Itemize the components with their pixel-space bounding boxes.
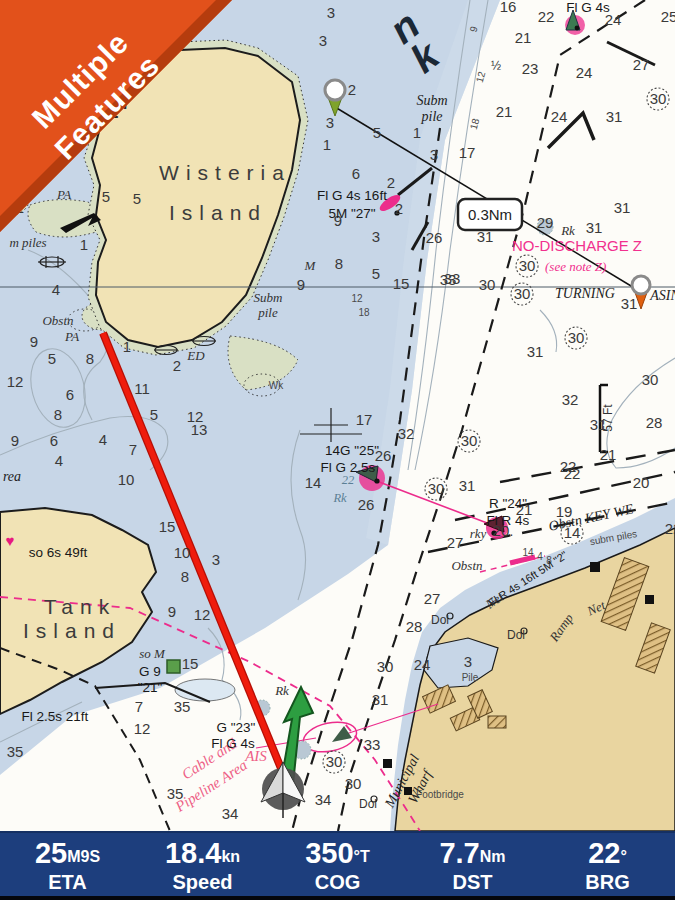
depth-sounding: 15 — [182, 655, 199, 672]
depth-sounding: 8 — [86, 350, 94, 367]
depth-sounding: 18 — [358, 307, 370, 318]
depth-sounding: 7 — [129, 441, 137, 458]
depth-sounding: 5 — [373, 124, 381, 141]
depth-sounding: 11 — [134, 380, 150, 397]
depth-sounding: 30 — [377, 658, 394, 675]
chart-label: 3 — [464, 653, 472, 670]
depth-sounding: 35 — [174, 698, 191, 715]
depth-sounding: 12 — [187, 408, 204, 425]
chart-label: rea — [3, 469, 21, 484]
chart-label: Tank — [44, 595, 116, 618]
depth-sounding: 32 — [562, 391, 579, 408]
depth-sounding: 3 — [430, 146, 438, 163]
chart-label: Subm — [254, 290, 283, 305]
depth-sounding: 2 — [173, 357, 181, 374]
chart-label: Obstn — [42, 313, 73, 328]
chart-label: 20. — [493, 522, 514, 539]
daymark-green-square — [167, 660, 180, 673]
depth-sounding: 30 — [568, 329, 585, 346]
depth-sounding: 12 — [7, 373, 24, 390]
depth-sounding: 29 — [537, 214, 554, 231]
chart-label: Island — [23, 619, 121, 642]
depth-sounding: 25 — [661, 8, 675, 25]
chart-label: 57 Ft — [601, 404, 615, 432]
depth-sounding: 9 — [30, 333, 38, 350]
depth-sounding: 3 — [319, 32, 327, 49]
chart-label: 5M "27" — [328, 206, 375, 221]
chart-label: 22 — [342, 473, 355, 487]
depth-sounding: 1 — [123, 338, 131, 355]
depth-sounding: 30 — [428, 480, 445, 497]
depth-sounding: 30 — [642, 371, 659, 388]
depth-sounding: 31 — [459, 477, 476, 494]
depth-sounding: 8 — [54, 406, 62, 423]
chart-label: rky — [470, 526, 487, 541]
depth-sounding: 32 — [398, 425, 415, 442]
depth-sounding: 5 — [150, 406, 158, 423]
depth-sounding: 27 — [447, 534, 464, 551]
depth-sounding: 24 — [576, 64, 593, 81]
chart-label: G "23" — [217, 720, 256, 735]
depth-sounding: 1 — [80, 236, 88, 253]
nav-value: 350°T — [270, 838, 405, 868]
chart-label: 14G "25" — [325, 443, 379, 458]
nav-value: 18.4kn — [135, 838, 270, 868]
depth-sounding: 23 — [522, 60, 539, 77]
depth-sounding: 33 — [444, 270, 461, 287]
nav-value: 25M9S — [0, 838, 135, 868]
bottom-strip — [0, 896, 675, 900]
depth-sounding: 12 — [134, 720, 151, 737]
chart-label: PA — [64, 329, 79, 344]
depth-sounding: 24 — [551, 108, 568, 125]
nav-value: 7.7Nm — [405, 838, 540, 868]
nautical-chart-map[interactable]: 0.3Nm 7332813162224252123242721243130513… — [0, 0, 675, 831]
depth-sounding: 22 — [538, 8, 555, 25]
nav-label: Speed — [135, 872, 270, 893]
nav-label: COG — [270, 872, 405, 893]
chart-label: Dol — [431, 613, 449, 627]
depth-sounding: 17 — [459, 144, 476, 161]
depth-sounding: 6 — [50, 432, 58, 449]
depth-sounding: 28 — [406, 618, 423, 635]
chart-label: Footbridge — [416, 789, 464, 800]
chart-label: NO-DISCHARGE Z — [512, 237, 642, 254]
nav-cell-speed[interactable]: 18.4knSpeed — [135, 838, 270, 892]
depth-sounding: 17 — [356, 411, 373, 428]
depth-sounding: 30 — [345, 775, 362, 792]
depth-sounding: 31 — [372, 691, 389, 708]
chart-label: (see note Z) — [545, 259, 606, 274]
route-distance-label: 0.3Nm — [468, 206, 512, 223]
chart-label: ½ — [491, 59, 501, 73]
chart-label: Fl 2.5s 21ft — [22, 709, 89, 724]
depth-sounding: 4 — [52, 281, 60, 298]
depth-sounding: 30 — [519, 257, 536, 274]
depth-sounding: 4 — [55, 452, 63, 469]
depth-sounding: 22 — [564, 465, 581, 482]
depth-sounding: 5 — [102, 188, 110, 205]
depth-sounding: 6 — [66, 386, 74, 403]
nav-cell-brg[interactable]: 22°BRG — [540, 838, 675, 892]
depth-sounding: 4 — [537, 551, 543, 562]
depth-sounding: 31 — [614, 199, 631, 216]
depth-sounding: 9 — [168, 603, 176, 620]
depth-sounding: 1 — [413, 124, 421, 141]
depth-sounding: 30 — [650, 90, 667, 107]
navionics-chart-app: 0.3Nm 7332813162224252123242721243130513… — [0, 0, 675, 900]
nav-label: BRG — [540, 872, 675, 893]
depth-sounding: 21 — [600, 446, 617, 463]
nav-cell-eta[interactable]: 25M9SETA — [0, 838, 135, 892]
depth-sounding: 12 — [351, 293, 363, 304]
chart-label: Dol — [359, 797, 377, 811]
chart-label: PA — [56, 187, 71, 202]
depth-sounding: 3 — [326, 114, 334, 131]
depth-sounding: 1 — [323, 136, 331, 153]
depth-sounding: 21 — [515, 29, 532, 46]
chart-label: Rk — [560, 223, 575, 238]
nav-label: ETA — [0, 872, 135, 893]
depth-sounding: 31 — [606, 108, 623, 125]
depth-sounding: 34 — [222, 805, 239, 822]
nav-value: 22° — [540, 838, 675, 868]
depth-sounding: 26 — [358, 496, 375, 513]
depth-sounding: 15 — [159, 518, 176, 535]
depth-sounding: 15 — [393, 275, 410, 292]
depth-sounding: 7 — [135, 698, 143, 715]
depth-sounding: 31 — [527, 343, 544, 360]
chart-label: pile — [257, 305, 278, 320]
depth-sounding: 6 — [352, 165, 360, 182]
depth-sounding: 27 — [633, 56, 650, 73]
depth-sounding: 2 — [348, 81, 356, 98]
chart-label: Island — [169, 201, 267, 224]
depth-sounding: 22 — [665, 520, 675, 537]
depth-sounding: 20 — [633, 474, 650, 491]
nav-cell-cog[interactable]: 350°TCOG — [270, 838, 405, 892]
chart-label: Subm — [416, 93, 447, 108]
depth-sounding: 8 — [181, 568, 189, 585]
depth-sounding: 5 — [48, 350, 56, 367]
route-distance-box[interactable]: 0.3Nm — [458, 199, 522, 230]
depth-sounding: 2 — [387, 174, 395, 191]
depth-sounding: 30 — [514, 285, 531, 302]
chart-label: so 6s 49ft — [29, 545, 88, 560]
depth-sounding: 31 — [586, 219, 603, 236]
chart-label: Pile — [462, 672, 479, 683]
chart-label: R "24" — [489, 496, 527, 511]
depth-sounding: 10 — [118, 471, 135, 488]
chart-label: "21" — [138, 680, 163, 695]
chart-label: m piles — [9, 235, 46, 250]
chart-label: Rk — [274, 683, 289, 698]
depth-sounding: 26 — [426, 229, 443, 246]
depth-sounding: 3 — [212, 551, 220, 568]
chart-label: ED — [186, 348, 205, 363]
depth-sounding: 14 — [522, 547, 534, 558]
depth-sounding: 3 — [372, 228, 380, 245]
depth-sounding: 33 — [364, 736, 381, 753]
depth-sounding: 21 — [496, 103, 513, 120]
depth-sounding: 34 — [315, 791, 332, 808]
depth-sounding: 24 — [414, 656, 431, 673]
chart-label: Wisteria — [159, 161, 291, 184]
chart-label: so M — [139, 646, 166, 661]
depth-sounding: 31 — [621, 295, 638, 312]
chart-label: ASIN — [649, 288, 675, 303]
nav-cell-dst[interactable]: 7.7NmDST — [405, 838, 540, 892]
depth-sounding: 35 — [7, 743, 24, 760]
depth-sounding: 31 — [477, 228, 494, 245]
chart-label: TURNING — [555, 286, 615, 301]
depth-sounding: 9 — [11, 432, 19, 449]
nav-label: DST — [405, 872, 540, 893]
depth-sounding: 5 — [133, 190, 141, 207]
chart-label: Fl G 4s 16ft — [317, 188, 387, 203]
depth-sounding: 10 — [174, 544, 191, 561]
depth-sounding: 12 — [194, 606, 211, 623]
depth-sounding: 28 — [646, 414, 663, 431]
depth-sounding: 30 — [461, 432, 478, 449]
depth-sounding: 30 — [326, 753, 343, 770]
depth-sounding: 5 — [372, 265, 380, 282]
depth-sounding: 30 — [479, 276, 496, 293]
depth-sounding: 27 — [424, 590, 441, 607]
chart-label: G 9 — [139, 664, 161, 679]
depth-sounding: 3 — [327, 4, 335, 21]
chart-label: M — [304, 258, 317, 273]
depth-sounding: 9 — [297, 276, 305, 293]
chart-label: Fl G 4s — [211, 736, 255, 751]
depth-sounding: 14 — [305, 474, 322, 491]
depth-sounding: 4 — [99, 431, 107, 448]
chart-label: Dol — [507, 628, 525, 642]
chart-label: Fl G 4s — [566, 0, 610, 15]
depth-sounding: 16 — [500, 0, 517, 15]
chart-label: Rk — [332, 491, 347, 505]
chart-label: ♥ — [6, 532, 15, 549]
nav-data-bar: 25M9SETA18.4knSpeed350°TCOG7.7NmDST22°BR… — [0, 831, 675, 898]
depth-sounding: 2 — [395, 200, 403, 217]
chart-label: Wk — [269, 380, 284, 391]
chart-label: Obstn — [451, 558, 482, 573]
chart-label: pile — [421, 109, 443, 124]
depth-sounding: 8 — [335, 255, 343, 272]
